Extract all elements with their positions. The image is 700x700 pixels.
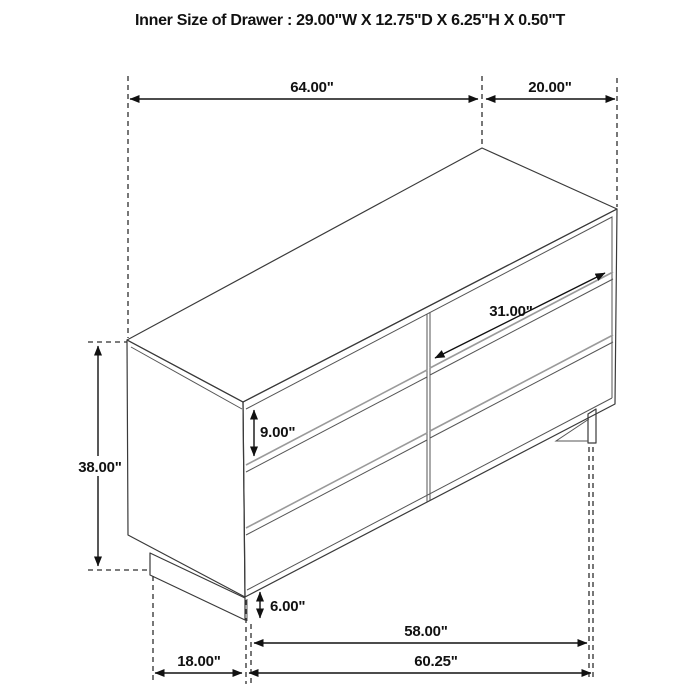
dimension-diagram-page: Inner Size of Drawer : 29.00"W X 12.75"D… bbox=[0, 0, 700, 700]
plinth-base bbox=[150, 553, 247, 621]
dim-overall-height-label: 38.00" bbox=[78, 459, 122, 476]
dim-base-height: 6.00" bbox=[260, 592, 305, 618]
dresser-dimension-diagram: Inner Size of Drawer : 29.00"W X 12.75"D… bbox=[0, 0, 700, 700]
top-slab-edge bbox=[131, 347, 242, 409]
dim-bottom-depth: 18.00" bbox=[155, 653, 242, 673]
dim-drawer-height-label: 9.00" bbox=[260, 424, 295, 441]
dim-base-height-label: 6.00" bbox=[270, 598, 305, 615]
dim-top-depth: 20.00" bbox=[486, 79, 615, 99]
leg-bracket bbox=[556, 419, 589, 441]
dim-drawer-width-label: 31.00" bbox=[489, 303, 533, 320]
dim-bottom-depth-label: 18.00" bbox=[177, 653, 221, 670]
dresser-left-panel bbox=[127, 340, 245, 597]
dim-top-width: 64.00" bbox=[130, 79, 478, 99]
diagram-title: Inner Size of Drawer : 29.00"W X 12.75"D… bbox=[135, 12, 566, 29]
dresser-top-face bbox=[127, 148, 617, 402]
dim-bottom-width-label: 60.25" bbox=[414, 653, 458, 670]
dim-bottom-width: 60.25" bbox=[249, 653, 591, 673]
dim-drawer-width: 31.00" bbox=[435, 273, 605, 358]
dim-overall-height: 38.00" bbox=[76, 346, 123, 566]
dim-base-width-label: 58.00" bbox=[404, 623, 448, 640]
drawer-divider bbox=[427, 312, 430, 502]
extension-lines bbox=[88, 76, 617, 684]
dim-top-width-label: 64.00" bbox=[290, 79, 334, 96]
dresser-drawing bbox=[127, 148, 617, 621]
dim-base-width: 58.00" bbox=[254, 623, 587, 643]
dim-top-depth-label: 20.00" bbox=[528, 79, 572, 96]
front-right-leg bbox=[556, 409, 596, 443]
